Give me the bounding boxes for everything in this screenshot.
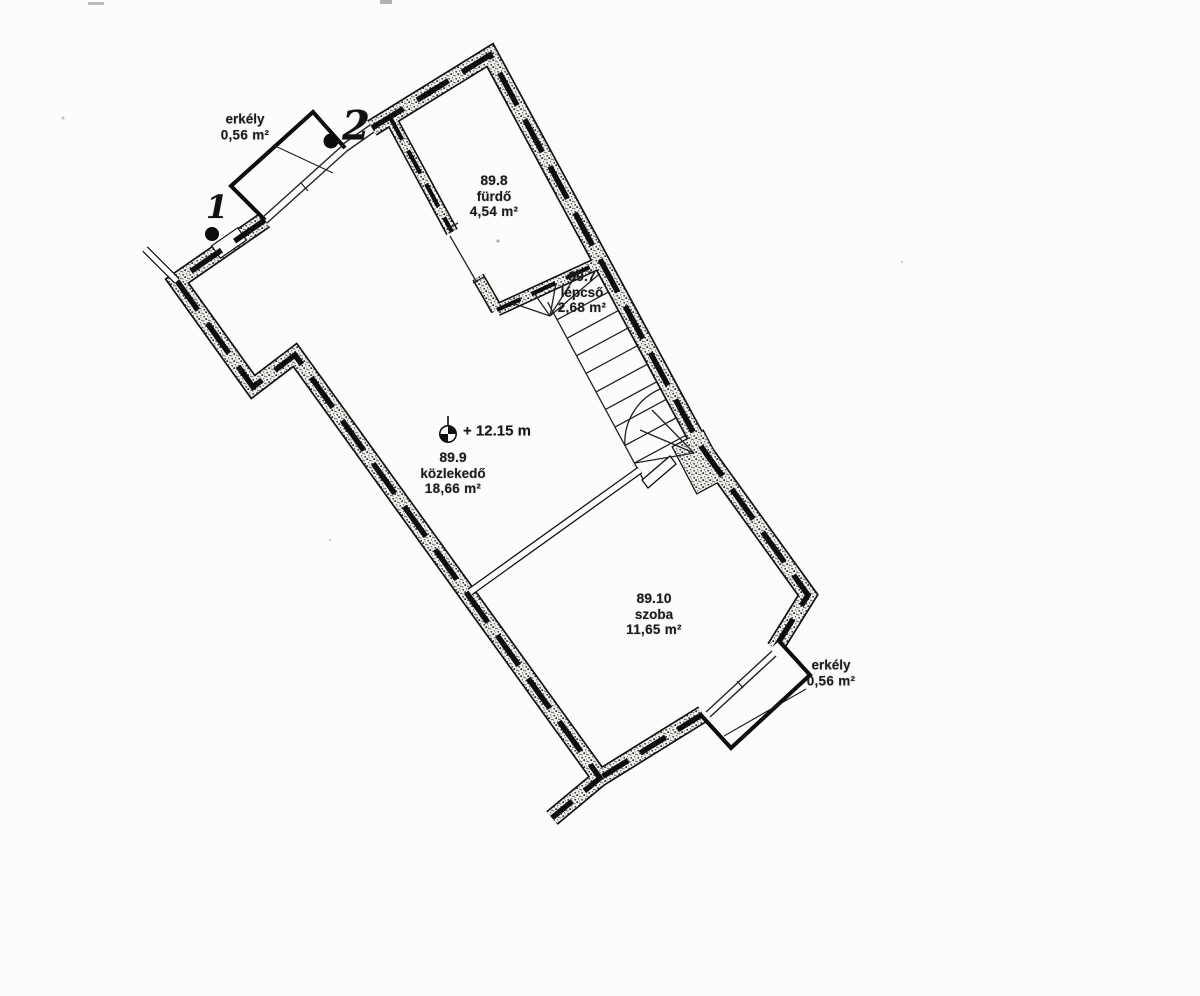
room-label-kozlekedo: 89.9 közlekedő 18,66 m² [420,450,485,497]
room-area: 2,68 m² [558,300,607,316]
balcony-bottom [700,641,810,748]
room-name: szoba [626,606,682,622]
room-area: 18,66 m² [420,481,485,497]
room-id: 89.8 [470,173,519,189]
room-label-szoba: 89.10 szoba 11,65 m² [626,591,682,638]
balcony-top-label: erkély 0,56 m² [221,112,270,143]
balcony-bottom-name: erkély [807,658,856,674]
room-label-furdo: 89.8 fürdő 4,54 m² [470,173,519,220]
elevation-label: + 12.15 m [463,423,531,440]
balcony-top-name: erkély [221,112,270,128]
survey-point-dot-2 [324,134,339,149]
balcony-bottom-area: 0,56 m² [807,673,856,689]
room-id: 89.7 [558,269,607,285]
room-label-lepcso: 89.7 lépcső 2,68 m² [558,269,607,316]
floorplan-drawing [0,0,1200,996]
room-name: lépcső [558,284,607,300]
survey-marker-label-2: 2 [342,103,370,150]
elevation-benchmark-icon [440,416,456,442]
balcony-top-area: 0,56 m² [221,127,270,143]
room-partition [470,456,676,592]
survey-point-dot-1 [205,227,219,241]
room-id: 89.9 [420,450,485,466]
room-name: fürdő [470,188,519,204]
balcony-bottom-label: erkély 0,56 m² [807,658,856,689]
room-area: 4,54 m² [470,204,519,220]
bathroom-door [447,223,484,283]
wall-stub [145,249,177,281]
floorplan-canvas: 1 2 erkély 0,56 m² 89.8 fürdő 4,54 m² 89… [0,0,1200,996]
survey-marker-label-1: 1 [206,188,228,226]
room-name: közlekedő [420,465,485,481]
room-area: 11,65 m² [626,622,682,638]
room-id: 89.10 [626,591,682,607]
